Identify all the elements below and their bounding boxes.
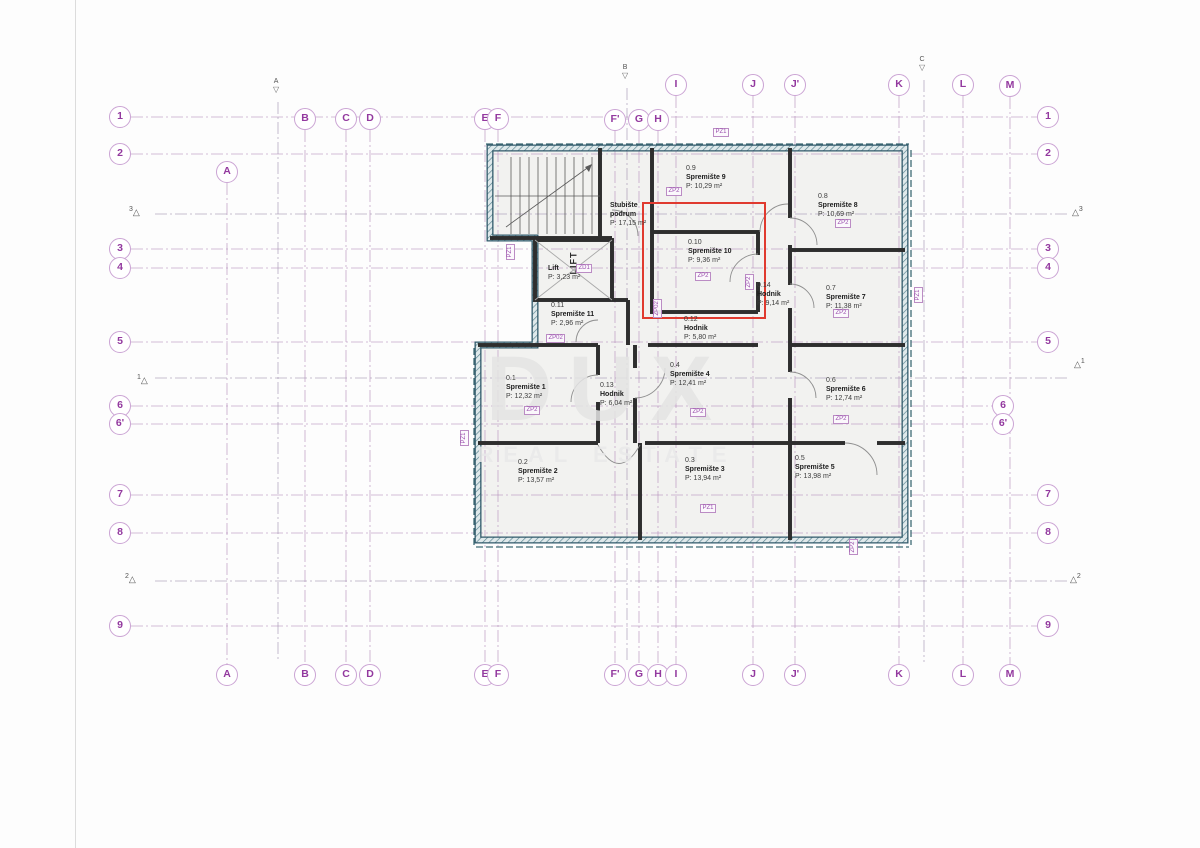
grid-bubble-col-top-D: D [359,108,381,130]
room-area: P: 3,23 m² [548,273,580,282]
room-number: 0.7 [826,284,866,293]
room-label-0.4: 0.4Spremište 4P: 12,41 m² [670,361,710,388]
room-area: P: 2,96 m² [551,319,594,328]
room-label-0.13: 0.13HodnikP: 6,04 m² [600,381,632,408]
grid-bubble-row-left-7: 7 [109,484,131,506]
room-label-0.3: 0.3Spremište 3P: 13,94 m² [685,456,725,483]
room-label-0.12: 0.12HodnikP: 5,80 m² [684,315,716,342]
grid-bubble-col-top-F: F [487,108,509,130]
room-tag-0.8: ZP2 [835,219,851,228]
grid-bubble-row-right-8: 8 [1037,522,1059,544]
section-triangle-icon: △ [133,207,140,217]
grid-bubble-col-bottom-F': F' [604,664,626,686]
section-triangle-icon: △ [141,375,148,385]
grid-bubble-row-left-9: 9 [109,615,131,637]
section-triangle-icon: △ [1070,574,1077,584]
room-number: 0.10 [688,238,732,247]
room-name: Spremište 8 [818,201,858,210]
room-tag-0.1: ZP2 [524,406,540,415]
room-area: P: 12,74 m² [826,394,866,403]
grid-bubble-row-left-1: 1 [109,106,131,128]
section-triangle-icon: ▽ [622,71,628,80]
grid-bubble-col-bottom-L: L [952,664,974,686]
room-name: Spremište 6 [826,385,866,394]
room-number: 0.8 [818,192,858,201]
room-name: Hodnik [757,290,789,299]
section-marker-top-A: A▽ [273,78,279,94]
room-label-0.10: 0.10Spremište 10P: 9,36 m² [688,238,732,265]
section-triangle-icon: △ [1074,359,1081,369]
section-marker-left-3: 3△ [129,206,140,218]
room-label-0.14: 0.14HodnikP: 9,14 m² [757,281,789,308]
grid-bubble-col-top-H: H [647,109,669,131]
section-triangle-icon: △ [1072,207,1079,217]
room-name: Spremište 7 [826,293,866,302]
grid-bubble-col-bottom-I: I [665,664,687,686]
grid-bubble-col-top-B: B [294,108,316,130]
room-label-0.9: 0.9Spremište 9P: 10,29 m² [686,164,726,191]
room-number: 0.14 [757,281,789,290]
grid-bubble-row-left-6': 6' [109,413,131,435]
room-tag-0.4: ZP2 [690,408,706,417]
room-label-0.2: 0.2Spremište 2P: 13,57 m² [518,458,558,485]
grid-bubble-col-top-J': J' [784,74,806,96]
plan-tag-5: ZP02 [653,299,662,318]
room-name: Hodnik [684,324,716,333]
plan-tag-2: PZ1 [506,244,515,260]
room-number: 0.11 [551,301,594,310]
grid-bubble-col-top-M: M [999,75,1021,97]
grid-bubble-row-left-2: 2 [109,143,131,165]
plan-tag-6: ZP02 [546,334,565,343]
room-tag-0.9: ZP2 [666,187,682,196]
room-area: P: 9,14 m² [757,299,789,308]
grid-bubble-col-bottom-B: B [294,664,316,686]
room-name: Spremište 5 [795,463,835,472]
grid-bubble-row-right-4: 4 [1037,257,1059,279]
room-number: 0.9 [686,164,726,173]
room-name: Spremište 2 [518,467,558,476]
room-label-0.8: 0.8Spremište 8P: 10,69 m² [818,192,858,219]
room-tag-0.6: ZP2 [833,415,849,424]
grid-bubble-col-bottom-D: D [359,664,381,686]
plan-tag-0: PZ1 [713,128,729,137]
plan-drawing [0,0,1200,848]
section-marker-top-C: C▽ [919,56,925,72]
section-marker-left-2: 2△ [125,573,136,585]
room-label-0.6: 0.6Spremište 6P: 12,74 m² [826,376,866,403]
room-area: P: 10,69 m² [818,210,858,219]
grid-bubble-row-right-2: 2 [1037,143,1059,165]
room-name: Spremište 1 [506,383,546,392]
room-area: P: 13,57 m² [518,476,558,485]
room-area: P: 9,36 m² [688,256,732,265]
grid-bubble-row-right-9: 9 [1037,615,1059,637]
grid-bubble-col-top-J: J [742,74,764,96]
grid-bubble-row-left-4: 4 [109,257,131,279]
grid-bubble-col-top-F': F' [604,109,626,131]
grid-bubble-col-top-L: L [952,74,974,96]
room-area: P: 10,29 m² [686,182,726,191]
room-label-0.11: 0.11Spremište 11P: 2,96 m² [551,301,594,328]
room-number: 0.12 [684,315,716,324]
grid-bubble-col-bottom-K: K [888,664,910,686]
room-name-line2: podrum [610,210,646,219]
room-name: Spremište 3 [685,465,725,474]
room-label-0.7: 0.7Spremište 7P: 11,38 m² [826,284,866,311]
grid-bubble-col-bottom-J': J' [784,664,806,686]
plan-tag-1: PZ1 [700,504,716,513]
grid-bubble-row-right-5: 5 [1037,331,1059,353]
section-marker-right-3: △3 [1072,206,1083,218]
grid-bubble-row-right-7: 7 [1037,484,1059,506]
grid-bubble-col-bottom-F: F [487,664,509,686]
plan-tag-9: ZP2 [849,539,858,555]
grid-bubble-col-top-C: C [335,108,357,130]
room-number: 0.5 [795,454,835,463]
section-marker-number: 1 [1081,358,1085,365]
grid-bubble-col-bottom-A: A [216,664,238,686]
section-marker-right-2: △2 [1070,573,1081,585]
room-area: P: 17,15 m² [610,219,646,228]
room-area: P: 12,41 m² [670,379,710,388]
room-label-0.5: 0.5Spremište 5P: 13,98 m² [795,454,835,481]
room-name: Spremište 10 [688,247,732,256]
room-tag-0.7: ZP2 [833,309,849,318]
room-name: Spremište 4 [670,370,710,379]
room-number: 0.3 [685,456,725,465]
grid-bubble-col-bottom-J: J [742,664,764,686]
section-marker-number: 3 [1079,206,1083,213]
grid-bubble-row-right-6': 6' [992,413,1014,435]
grid-bubble-row-left-5: 5 [109,331,131,353]
room-area: P: 6,04 m² [600,399,632,408]
room-area: P: 5,80 m² [684,333,716,342]
room-label-0.1: 0.1Spremište 1P: 12,32 m² [506,374,546,401]
section-triangle-icon: ▽ [273,85,279,94]
room-number: 0.4 [670,361,710,370]
section-triangle-icon: ▽ [919,63,925,72]
room-name: Hodnik [600,390,632,399]
plan-tag-3: PZ1 [914,287,923,303]
section-marker-number: 2 [1077,573,1081,580]
section-marker-left-1: 1△ [137,374,148,386]
room-label-stubište: StubištepodrumP: 17,15 m² [610,201,646,228]
room-area: P: 13,94 m² [685,474,725,483]
room-number: 0.1 [506,374,546,383]
room-name: Spremište 9 [686,173,726,182]
grid-bubble-row-left-8: 8 [109,522,131,544]
section-triangle-icon: △ [129,574,136,584]
grid-bubble-row-right-1: 1 [1037,106,1059,128]
floor-plan-sheet: DUX REAL ESTATE LIFT AABBCCDDEEFFF'F'GGH… [0,0,1200,848]
grid-bubble-col-top-I: I [665,74,687,96]
plan-tag-7: ZD1 [576,264,592,273]
plan-tag-4: PZ1 [460,430,469,446]
room-number: 0.2 [518,458,558,467]
grid-bubble-col-top-K: K [888,74,910,96]
section-marker-top-B: B▽ [622,64,628,80]
plan-tag-8: ZP2 [745,274,754,290]
room-name: Spremište 11 [551,310,594,319]
section-marker-right-1: △1 [1074,358,1085,370]
room-name: Stubište [610,201,646,210]
grid-bubble-col-top-A: A [216,161,238,183]
grid-bubble-col-bottom-C: C [335,664,357,686]
room-number: 0.13 [600,381,632,390]
grid-bubble-col-bottom-M: M [999,664,1021,686]
room-number: 0.6 [826,376,866,385]
room-area: P: 12,32 m² [506,392,546,401]
room-area: P: 13,98 m² [795,472,835,481]
room-tag-0.10: ZP2 [695,272,711,281]
